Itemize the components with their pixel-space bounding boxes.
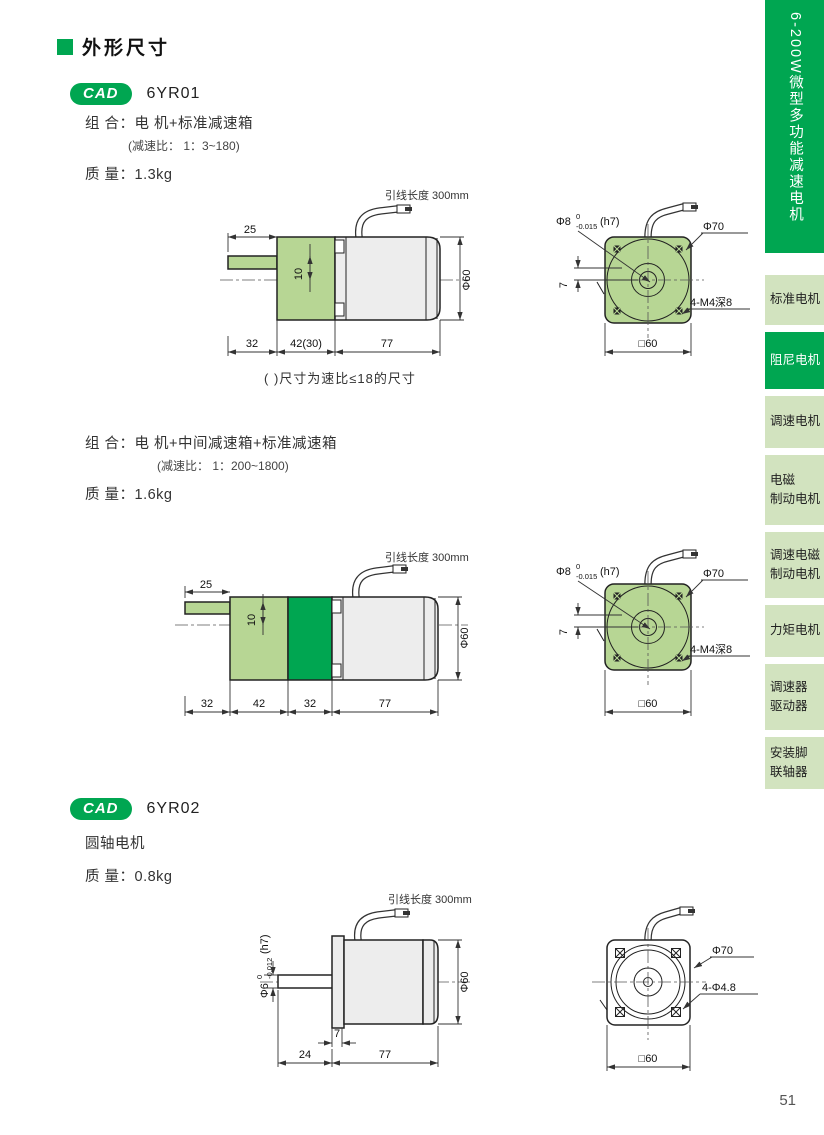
side-view-6yr02: Φ6 0 -0.012 (h7) 7 24 77: [255, 909, 471, 1067]
dim-dia60: Φ60: [461, 269, 473, 290]
sidebar-item-controller-driver[interactable]: 调速器 驱动器: [765, 664, 824, 730]
spec-block-3: 圆轴电机 质 量：0.8kg: [85, 832, 173, 886]
dim-24: 24: [299, 1049, 311, 1061]
shaft-tolerance-base: Φ8: [556, 216, 571, 228]
dim-7: 7: [558, 629, 570, 635]
dim-32: 32: [246, 338, 258, 350]
dim-7: 7: [558, 282, 570, 288]
ratio-text: (减速比： 1：3~180): [128, 137, 253, 154]
intermediate-gearbox: [288, 597, 332, 680]
shaft-tolerance-base: Φ8: [556, 566, 571, 578]
dim-32b: 32: [304, 698, 316, 710]
tolerance-sub: -0.015: [576, 222, 597, 231]
dim-10: 10: [293, 268, 305, 280]
cad-row-6yr02: CAD 6YR02: [70, 798, 200, 820]
weight-text: 质 量：1.6kg: [85, 483, 337, 504]
dim-dia60: Φ60: [459, 627, 471, 648]
dim-dia70: Φ70: [703, 568, 724, 580]
fit-class: (h7): [600, 216, 620, 228]
dim-10: 10: [246, 614, 258, 626]
motor-body: [344, 940, 423, 1024]
dim-77: 77: [381, 338, 393, 350]
motor-body: [335, 237, 440, 320]
page-number: 51: [779, 1092, 796, 1109]
dim-42: 42: [253, 698, 265, 710]
tolerance-sup: 0: [576, 212, 580, 221]
sidebar-item-label: 标准电机: [770, 290, 824, 309]
cad-row-6yr01: CAD 6YR01: [70, 83, 200, 105]
standard-gearbox: [230, 597, 288, 680]
dim-dia60: Φ60: [459, 971, 471, 992]
fit-class: (h7): [600, 566, 620, 578]
sidebar-spacer: [765, 253, 824, 275]
tolerance-sup: 0: [255, 975, 264, 979]
lead-length-label: 引线长度 300mm: [385, 188, 469, 202]
sidebar-item-label: 阻尼电机: [770, 351, 824, 370]
sidebar-header: 6-200W微型多功能减速电机: [765, 0, 824, 253]
page-title: 外形尺寸: [82, 33, 170, 60]
model-code-6yr02: 6YR02: [147, 800, 201, 818]
motor-body: [332, 597, 438, 680]
section-heading: 外形尺寸: [57, 33, 170, 60]
combo-text: 组 合：电 机+标准减速箱: [85, 112, 253, 133]
shaft-tolerance-base: Φ6: [259, 983, 271, 998]
cad-badge[interactable]: CAD: [70, 83, 132, 105]
sidebar-item-label: 调速电机: [770, 412, 824, 431]
shaft-tolerance-label: Φ6 0 -0.012 (h7): [255, 934, 274, 998]
spec-block-1: 组 合：电 机+标准减速箱 (减速比： 1：3~180) 质 量：1.3kg: [85, 112, 253, 184]
cad-badge[interactable]: CAD: [70, 798, 132, 820]
dim-square60: □60: [639, 698, 658, 710]
sidebar-item-standard-motor[interactable]: 标准电机: [765, 275, 824, 325]
side-view-6yr01-long: 25 10 32 42 32 77 Φ60: [175, 565, 471, 716]
sidebar-item-label: 制动电机: [770, 490, 824, 509]
output-shaft: [185, 602, 230, 614]
sidebar-item-label: 调速电磁: [770, 546, 824, 565]
ratio-note: ( )尺寸为速比≤18的尺寸: [264, 368, 416, 387]
sidebar-nav: 6-200W微型多功能减速电机 标准电机 阻尼电机 调速电机 电磁 制动电机 调…: [765, 0, 824, 796]
sidebar-item-em-brake-motor[interactable]: 电磁 制动电机: [765, 455, 824, 525]
ratio-text: (减速比： 1：200~1800): [157, 457, 337, 474]
sidebar-item-label: 力矩电机: [770, 621, 824, 640]
round-shaft: [278, 975, 333, 988]
sidebar-item-label: 制动电机: [770, 565, 824, 584]
dim-32a: 32: [201, 698, 213, 710]
gearbox: [277, 237, 335, 320]
dim-25: 25: [244, 224, 256, 236]
dimension-drawing-2: 引线长度 300mm 25 10: [150, 538, 770, 738]
dim-square60: □60: [639, 1053, 658, 1065]
dimension-drawing-3: 引线长度 300mm Φ6 0 -0.012 (h7): [230, 886, 770, 1086]
sidebar-item-label: 安装脚: [770, 744, 824, 763]
dim-25: 25: [200, 579, 212, 591]
sidebar-item-label: 调速器: [770, 678, 824, 697]
sidebar-item-speed-motor[interactable]: 调速电机: [765, 396, 824, 448]
weight-text: 质 量：1.3kg: [85, 163, 253, 184]
front-view-6yr01-long: Φ8 0 -0.015 (h7) 7 Φ70 4-M4深8 □60: [556, 550, 750, 716]
dim-77: 77: [379, 698, 391, 710]
model-code-6yr01: 6YR01: [147, 85, 201, 103]
sidebar-item-damping-motor[interactable]: 阻尼电机: [765, 332, 824, 389]
sidebar-item-label: 联轴器: [770, 763, 824, 782]
side-view-6yr01: 25 10 32 42(30) 77 Φ60: [220, 205, 473, 356]
sidebar-item-speed-em-brake-motor[interactable]: 调速电磁 制动电机: [765, 532, 824, 598]
dim-holes: 4-Φ4.8: [702, 982, 736, 994]
dim-dia70: Φ70: [703, 221, 724, 233]
dim-holes: 4-M4深8: [690, 296, 732, 309]
fit-class: (h7): [259, 934, 271, 954]
motor-type-text: 圆轴电机: [85, 832, 173, 853]
weight-text: 质 量：0.8kg: [85, 865, 173, 886]
dim-holes: 4-M4深8: [690, 643, 732, 656]
dim-7: 7: [334, 1028, 340, 1040]
dim-dia70: Φ70: [712, 945, 733, 957]
tolerance-sup: 0: [576, 562, 580, 571]
sidebar-item-label: 驱动器: [770, 697, 824, 716]
dim-42-30: 42(30): [290, 338, 322, 350]
dim-77: 77: [379, 1049, 391, 1061]
front-view-6yr01: Φ8 0 -0.015 (h7) 7 Φ70 4-M4深8 □60: [556, 203, 750, 356]
section-bullet-icon: [57, 39, 73, 55]
catalog-page: 外形尺寸 CAD 6YR01 组 合：电 机+标准减速箱 (减速比： 1：3~1…: [0, 0, 824, 1135]
sidebar-item-label: 电磁: [770, 471, 824, 490]
output-shaft: [228, 256, 277, 269]
front-flange: [332, 936, 344, 1028]
lead-length-label: 引线长度 300mm: [385, 550, 469, 564]
spec-block-2: 组 合：电 机+中间减速箱+标准减速箱 (减速比： 1：200~1800) 质 …: [85, 432, 337, 504]
combo-text: 组 合：电 机+中间减速箱+标准减速箱: [85, 432, 337, 453]
dim-square60: □60: [639, 338, 658, 350]
front-view-6yr02: Φ70 4-Φ4.8 □60: [592, 907, 758, 1071]
sidebar-item-torque-motor[interactable]: 力矩电机: [765, 605, 824, 657]
sidebar-item-mounting-coupling[interactable]: 安装脚 联轴器: [765, 737, 824, 789]
lead-length-label: 引线长度 300mm: [388, 892, 472, 906]
dimension-drawing-1: 引线长度 300mm 25 10: [150, 186, 770, 386]
tolerance-sub: -0.015: [576, 572, 597, 581]
